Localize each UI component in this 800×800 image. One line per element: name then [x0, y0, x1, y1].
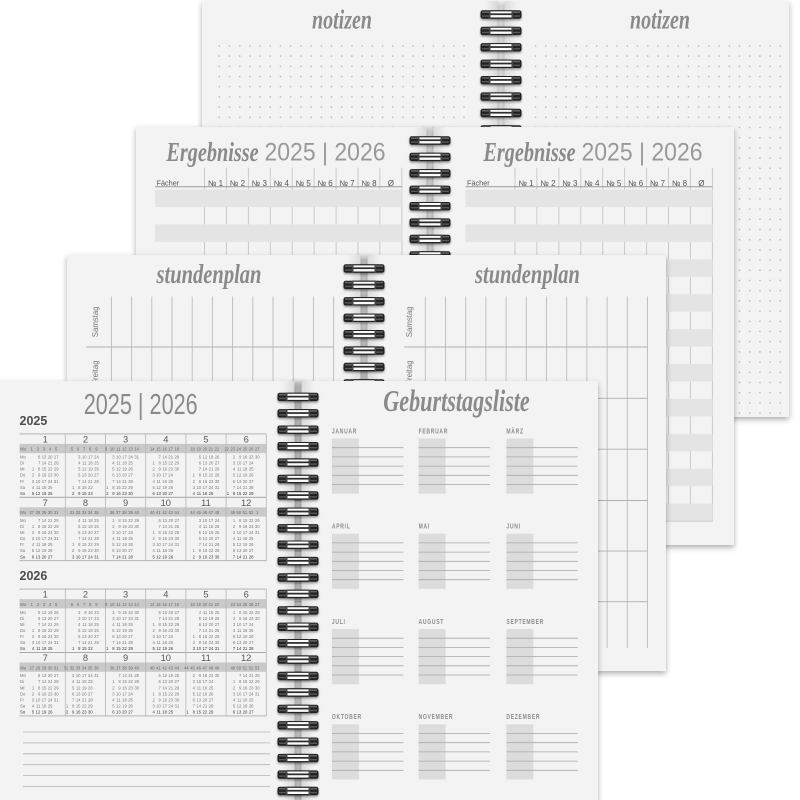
svg-text:30: 30 — [134, 524, 139, 529]
svg-text:29: 29 — [42, 665, 47, 670]
svg-text:23: 23 — [249, 524, 254, 529]
svg-text:19: 19 — [243, 473, 248, 478]
svg-text:14: 14 — [237, 646, 242, 651]
svg-text:14: 14 — [162, 455, 167, 460]
svg-text:11: 11 — [157, 710, 162, 715]
svg-text:18: 18 — [122, 697, 127, 702]
svg-text:18: 18 — [175, 602, 180, 607]
svg-text:6: 6 — [244, 590, 249, 600]
svg-text:Ergebnisse: Ergebnisse — [166, 138, 259, 167]
svg-text:20: 20 — [42, 554, 47, 559]
svg-text:NOVEMBER: NOVEMBER — [419, 713, 454, 721]
svg-text:28: 28 — [255, 673, 260, 678]
svg-text:16: 16 — [203, 640, 208, 645]
svg-text:20: 20 — [122, 710, 127, 715]
svg-text:15: 15 — [156, 602, 161, 607]
svg-text:Wo: Wo — [20, 602, 27, 607]
svg-text:10: 10 — [110, 447, 115, 452]
svg-text:31: 31 — [255, 691, 260, 696]
svg-text:stundenplan: stundenplan — [474, 260, 580, 289]
svg-text:14: 14 — [116, 640, 121, 645]
svg-text:14: 14 — [134, 602, 139, 607]
svg-text:30: 30 — [175, 467, 180, 472]
svg-text:15: 15 — [122, 518, 127, 523]
svg-text:29: 29 — [134, 679, 139, 684]
svg-text:24: 24 — [48, 536, 53, 541]
svg-text:21: 21 — [48, 622, 53, 627]
svg-text:10: 10 — [76, 554, 81, 559]
svg-text:27: 27 — [175, 610, 180, 615]
svg-text:18: 18 — [162, 640, 167, 645]
svg-text:16: 16 — [243, 616, 248, 621]
svg-text:15: 15 — [42, 467, 47, 472]
svg-text:18: 18 — [190, 602, 195, 607]
svg-text:26: 26 — [249, 447, 254, 452]
svg-text:10: 10 — [36, 640, 41, 645]
svg-text:13: 13 — [82, 530, 87, 535]
svg-text:11: 11 — [36, 485, 41, 490]
svg-text:15: 15 — [42, 628, 47, 633]
svg-text:25: 25 — [249, 628, 254, 633]
svg-text:30: 30 — [94, 548, 99, 553]
svg-text:13: 13 — [203, 461, 208, 466]
svg-text:22: 22 — [82, 704, 87, 709]
svg-text:26: 26 — [215, 616, 220, 621]
svg-text:22: 22 — [48, 685, 53, 690]
svg-text:40: 40 — [134, 510, 139, 515]
svg-text:19: 19 — [162, 554, 167, 559]
svg-text:JUNI: JUNI — [506, 523, 520, 531]
svg-text:16: 16 — [116, 491, 121, 496]
svg-text:21: 21 — [243, 554, 248, 559]
svg-text:DEZEMBER: DEZEMBER — [506, 713, 540, 721]
svg-text:21: 21 — [168, 524, 173, 529]
svg-text:19: 19 — [243, 542, 248, 547]
svg-text:Sa: Sa — [20, 548, 26, 553]
svg-text:29: 29 — [54, 628, 59, 633]
svg-text:16: 16 — [203, 673, 208, 678]
svg-text:24: 24 — [48, 479, 53, 484]
svg-text:22: 22 — [249, 518, 254, 523]
svg-text:stundenplan: stundenplan — [156, 260, 262, 289]
svg-text:19: 19 — [88, 467, 93, 472]
svg-text:16: 16 — [162, 536, 167, 541]
svg-text:18: 18 — [175, 447, 180, 452]
svg-text:19: 19 — [203, 691, 208, 696]
svg-text:17: 17 — [203, 646, 208, 651]
svg-text:16: 16 — [243, 685, 248, 690]
svg-text:17: 17 — [122, 616, 127, 621]
svg-text:27: 27 — [88, 691, 93, 696]
svg-text:18: 18 — [122, 461, 127, 466]
svg-text:Sa: Sa — [20, 485, 26, 490]
svg-text:25: 25 — [128, 697, 133, 702]
svg-text:22: 22 — [88, 485, 93, 490]
svg-text:29: 29 — [54, 524, 59, 529]
svg-text:25: 25 — [243, 602, 248, 607]
svg-text:14: 14 — [162, 524, 167, 529]
svg-text:Mo: Mo — [20, 455, 26, 460]
svg-text:26: 26 — [175, 673, 180, 678]
svg-text:13: 13 — [116, 548, 121, 553]
svg-text:1: 1 — [43, 435, 48, 445]
svg-text:Wo: Wo — [20, 510, 27, 515]
svg-text:49: 49 — [215, 665, 220, 670]
svg-text:15: 15 — [162, 622, 167, 627]
svg-text:2: 2 — [83, 590, 88, 600]
svg-text:12: 12 — [203, 616, 208, 621]
svg-text:27: 27 — [249, 548, 254, 553]
svg-text:10: 10 — [156, 542, 161, 547]
svg-text:53: 53 — [255, 665, 260, 670]
svg-text:50: 50 — [237, 510, 242, 515]
svg-text:21: 21 — [82, 697, 87, 702]
svg-text:Mi: Mi — [20, 685, 24, 690]
svg-text:12: 12 — [156, 485, 161, 490]
svg-text:4: 4 — [163, 590, 168, 600]
svg-text:11: 11 — [157, 640, 162, 645]
svg-text:14: 14 — [42, 518, 47, 523]
svg-text:19: 19 — [162, 485, 167, 490]
svg-text:31: 31 — [215, 646, 220, 651]
svg-text:24: 24 — [168, 473, 173, 478]
svg-text:23: 23 — [48, 473, 53, 478]
svg-text:26: 26 — [249, 704, 254, 709]
svg-text:15: 15 — [42, 524, 47, 529]
svg-text:28: 28 — [54, 622, 59, 627]
svg-text:27: 27 — [175, 679, 180, 684]
svg-text:20: 20 — [122, 548, 127, 553]
svg-text:16: 16 — [122, 524, 127, 529]
svg-text:15: 15 — [203, 634, 208, 639]
svg-text:17: 17 — [82, 554, 87, 559]
svg-text:10: 10 — [36, 536, 41, 541]
svg-text:28: 28 — [175, 616, 180, 621]
svg-text:11: 11 — [116, 622, 121, 627]
svg-text:Mo: Mo — [20, 673, 26, 678]
svg-text:17: 17 — [42, 640, 47, 645]
svg-text:10: 10 — [161, 498, 171, 508]
svg-text:28: 28 — [36, 510, 41, 515]
svg-text:26: 26 — [249, 602, 254, 607]
svg-text:MÄRZ: MÄRZ — [506, 428, 523, 436]
svg-text:23: 23 — [48, 691, 53, 696]
svg-text:26: 26 — [168, 646, 173, 651]
svg-text:14: 14 — [116, 479, 121, 484]
svg-text:23: 23 — [128, 524, 133, 529]
svg-text:24: 24 — [209, 646, 214, 651]
svg-text:40: 40 — [150, 665, 155, 670]
svg-text:30: 30 — [134, 610, 139, 615]
svg-text:23: 23 — [209, 479, 214, 484]
svg-text:11: 11 — [157, 479, 162, 484]
svg-text:13: 13 — [42, 616, 47, 621]
svg-text:29: 29 — [175, 691, 180, 696]
svg-text:42: 42 — [162, 510, 167, 515]
svg-text:29: 29 — [128, 646, 133, 651]
svg-text:22: 22 — [88, 646, 93, 651]
svg-text:21: 21 — [249, 673, 254, 678]
svg-text:9: 9 — [123, 498, 128, 508]
svg-text:32: 32 — [76, 510, 81, 515]
svg-text:14: 14 — [203, 542, 208, 547]
svg-text:11: 11 — [116, 461, 121, 466]
svg-text:16: 16 — [162, 602, 167, 607]
svg-text:23: 23 — [209, 554, 214, 559]
svg-text:25: 25 — [168, 479, 173, 484]
svg-text:31: 31 — [215, 485, 220, 490]
svg-text:10: 10 — [82, 455, 87, 460]
svg-text:Do: Do — [20, 473, 26, 478]
svg-text:12: 12 — [82, 524, 87, 529]
svg-text:28: 28 — [249, 485, 254, 490]
svg-text:29: 29 — [175, 461, 180, 466]
svg-text:Mo: Mo — [20, 610, 26, 615]
svg-text:26: 26 — [48, 491, 53, 496]
svg-text:Fr: Fr — [20, 542, 25, 547]
svg-text:28: 28 — [175, 524, 180, 529]
svg-text:17: 17 — [82, 673, 87, 678]
svg-text:45: 45 — [190, 665, 195, 670]
svg-text:12: 12 — [237, 473, 242, 478]
svg-text:20: 20 — [88, 473, 93, 478]
svg-text:29: 29 — [215, 548, 220, 553]
svg-text:17: 17 — [122, 530, 127, 535]
svg-text:16: 16 — [162, 628, 167, 633]
svg-text:23: 23 — [94, 610, 99, 615]
svg-text:22: 22 — [168, 622, 173, 627]
svg-text:14: 14 — [203, 628, 208, 633]
svg-text:19: 19 — [122, 542, 127, 547]
svg-text:24: 24 — [168, 542, 173, 547]
svg-text:20: 20 — [168, 610, 173, 615]
svg-text:28: 28 — [209, 704, 214, 709]
svg-text:19: 19 — [209, 530, 214, 535]
svg-text:3: 3 — [123, 435, 128, 445]
svg-text:Di: Di — [20, 524, 24, 529]
svg-text:14: 14 — [42, 461, 47, 466]
svg-text:31: 31 — [54, 697, 59, 702]
svg-text:33: 33 — [82, 510, 87, 515]
svg-text:17: 17 — [88, 616, 93, 621]
svg-text:13: 13 — [116, 634, 121, 639]
svg-text:47: 47 — [203, 665, 208, 670]
svg-text:12: 12 — [237, 704, 242, 709]
svg-text:11: 11 — [197, 491, 202, 496]
svg-text:19: 19 — [209, 616, 214, 621]
svg-text:18: 18 — [209, 610, 214, 615]
svg-text:29: 29 — [215, 473, 220, 478]
svg-text:13: 13 — [42, 455, 47, 460]
svg-text:23: 23 — [231, 602, 236, 607]
svg-text:13: 13 — [237, 479, 242, 484]
svg-text:12: 12 — [156, 554, 161, 559]
svg-text:4: 4 — [163, 435, 168, 445]
svg-text:29: 29 — [209, 710, 214, 715]
svg-text:21: 21 — [168, 616, 173, 621]
svg-text:30: 30 — [255, 616, 260, 621]
svg-text:7: 7 — [43, 653, 48, 663]
svg-text:16: 16 — [162, 697, 167, 702]
svg-text:10: 10 — [161, 653, 171, 663]
svg-text:22: 22 — [215, 602, 220, 607]
svg-text:2025 | 2026: 2025 | 2026 — [581, 139, 702, 167]
svg-text:12: 12 — [162, 673, 167, 678]
svg-text:28: 28 — [88, 697, 93, 702]
svg-text:27: 27 — [54, 673, 59, 678]
svg-text:27: 27 — [209, 697, 214, 702]
svg-text:27: 27 — [215, 461, 220, 466]
svg-text:26: 26 — [94, 628, 99, 633]
svg-text:44: 44 — [175, 665, 180, 670]
svg-text:12: 12 — [196, 691, 201, 696]
svg-text:31: 31 — [134, 616, 139, 621]
svg-text:AUGUST: AUGUST — [419, 618, 444, 626]
svg-text:20: 20 — [203, 697, 208, 702]
svg-text:19: 19 — [42, 548, 47, 553]
svg-text:10: 10 — [76, 673, 81, 678]
svg-text:20: 20 — [168, 679, 173, 684]
svg-text:notizen: notizen — [312, 6, 372, 36]
svg-text:28: 28 — [215, 628, 220, 633]
svg-text:29: 29 — [88, 704, 93, 709]
svg-text:18: 18 — [42, 646, 47, 651]
svg-text:18: 18 — [42, 485, 47, 490]
svg-text:Fächer: Fächer — [157, 179, 180, 188]
svg-text:11: 11 — [116, 697, 121, 702]
svg-text:Di: Di — [20, 461, 24, 466]
svg-text:27: 27 — [30, 665, 35, 670]
svg-text:22: 22 — [168, 461, 173, 466]
svg-text:22: 22 — [203, 710, 208, 715]
svg-text:14: 14 — [134, 447, 139, 452]
svg-text:46: 46 — [196, 665, 201, 670]
svg-text:10: 10 — [203, 518, 208, 523]
svg-text:11: 11 — [237, 536, 242, 541]
svg-text:24: 24 — [168, 704, 173, 709]
svg-text:35: 35 — [88, 665, 93, 670]
svg-text:20: 20 — [82, 691, 87, 696]
svg-text:27: 27 — [168, 491, 173, 496]
svg-text:27: 27 — [255, 447, 260, 452]
svg-text:Fr: Fr — [20, 634, 25, 639]
svg-text:16: 16 — [42, 530, 47, 535]
svg-text:21: 21 — [122, 479, 127, 484]
svg-text:22: 22 — [48, 524, 53, 529]
svg-text:17: 17 — [243, 691, 248, 696]
svg-text:17: 17 — [42, 536, 47, 541]
svg-text:21: 21 — [88, 640, 93, 645]
svg-text:24: 24 — [88, 554, 93, 559]
svg-text:21: 21 — [209, 447, 214, 452]
svg-text:17: 17 — [122, 691, 127, 696]
svg-text:17: 17 — [243, 461, 248, 466]
svg-text:26: 26 — [48, 710, 53, 715]
svg-text:43: 43 — [168, 510, 173, 515]
svg-text:10: 10 — [237, 461, 242, 466]
svg-text:50: 50 — [237, 665, 242, 670]
svg-text:25: 25 — [48, 646, 53, 651]
svg-text:18: 18 — [190, 447, 195, 452]
svg-text:Wo: Wo — [20, 447, 27, 452]
svg-text:20: 20 — [168, 518, 173, 523]
svg-text:23: 23 — [48, 530, 53, 535]
svg-text:25: 25 — [209, 491, 214, 496]
svg-text:23: 23 — [48, 634, 53, 639]
svg-text:48: 48 — [215, 510, 220, 515]
svg-text:17: 17 — [209, 518, 214, 523]
svg-text:29: 29 — [175, 622, 180, 627]
svg-text:19: 19 — [209, 455, 214, 460]
svg-text:Fr: Fr — [20, 697, 25, 702]
svg-text:11: 11 — [237, 697, 242, 702]
svg-text:23: 23 — [168, 467, 173, 472]
svg-text:26: 26 — [128, 704, 133, 709]
svg-text:40: 40 — [134, 665, 139, 670]
svg-text:21: 21 — [128, 673, 133, 678]
svg-text:Do: Do — [20, 536, 26, 541]
svg-text:18: 18 — [88, 622, 93, 627]
svg-text:15: 15 — [82, 646, 87, 651]
svg-text:Sa: Sa — [20, 704, 26, 709]
svg-text:12: 12 — [203, 455, 208, 460]
svg-text:13: 13 — [196, 697, 201, 702]
svg-text:16: 16 — [162, 447, 167, 452]
svg-text:18: 18 — [243, 628, 248, 633]
svg-text:19: 19 — [243, 634, 248, 639]
svg-text:19: 19 — [122, 704, 127, 709]
svg-text:27: 27 — [128, 634, 133, 639]
svg-text:13: 13 — [237, 640, 242, 645]
svg-text:12: 12 — [122, 602, 127, 607]
svg-text:12: 12 — [36, 710, 41, 715]
svg-text:11: 11 — [201, 498, 211, 508]
svg-text:44: 44 — [184, 665, 189, 670]
svg-text:21: 21 — [168, 455, 173, 460]
svg-text:27: 27 — [215, 622, 220, 627]
svg-text:23: 23 — [231, 447, 236, 452]
svg-text:52: 52 — [249, 510, 254, 515]
svg-text:12: 12 — [36, 548, 41, 553]
svg-text:31: 31 — [54, 510, 59, 515]
svg-text:11: 11 — [197, 685, 202, 690]
svg-text:25: 25 — [128, 536, 133, 541]
svg-text:28: 28 — [36, 665, 41, 670]
svg-text:12: 12 — [122, 447, 127, 452]
svg-text:36: 36 — [94, 665, 99, 670]
svg-text:24: 24 — [215, 518, 220, 523]
svg-text:15: 15 — [243, 610, 248, 615]
svg-text:20: 20 — [122, 473, 127, 478]
svg-text:43: 43 — [168, 665, 173, 670]
svg-text:12: 12 — [36, 491, 41, 496]
svg-text:14: 14 — [42, 622, 47, 627]
svg-text:15: 15 — [82, 485, 87, 490]
svg-text:11: 11 — [203, 524, 208, 529]
svg-text:22: 22 — [88, 542, 93, 547]
svg-text:Mo: Mo — [20, 518, 26, 523]
svg-text:13: 13 — [82, 473, 87, 478]
svg-text:APRIL: APRIL — [332, 523, 351, 531]
svg-text:14: 14 — [150, 602, 155, 607]
svg-text:17: 17 — [203, 679, 208, 684]
svg-text:51: 51 — [243, 665, 248, 670]
svg-text:16: 16 — [122, 610, 127, 615]
svg-text:25: 25 — [215, 610, 220, 615]
svg-text:11: 11 — [36, 542, 41, 547]
svg-text:30: 30 — [54, 634, 59, 639]
svg-text:16: 16 — [82, 491, 87, 496]
